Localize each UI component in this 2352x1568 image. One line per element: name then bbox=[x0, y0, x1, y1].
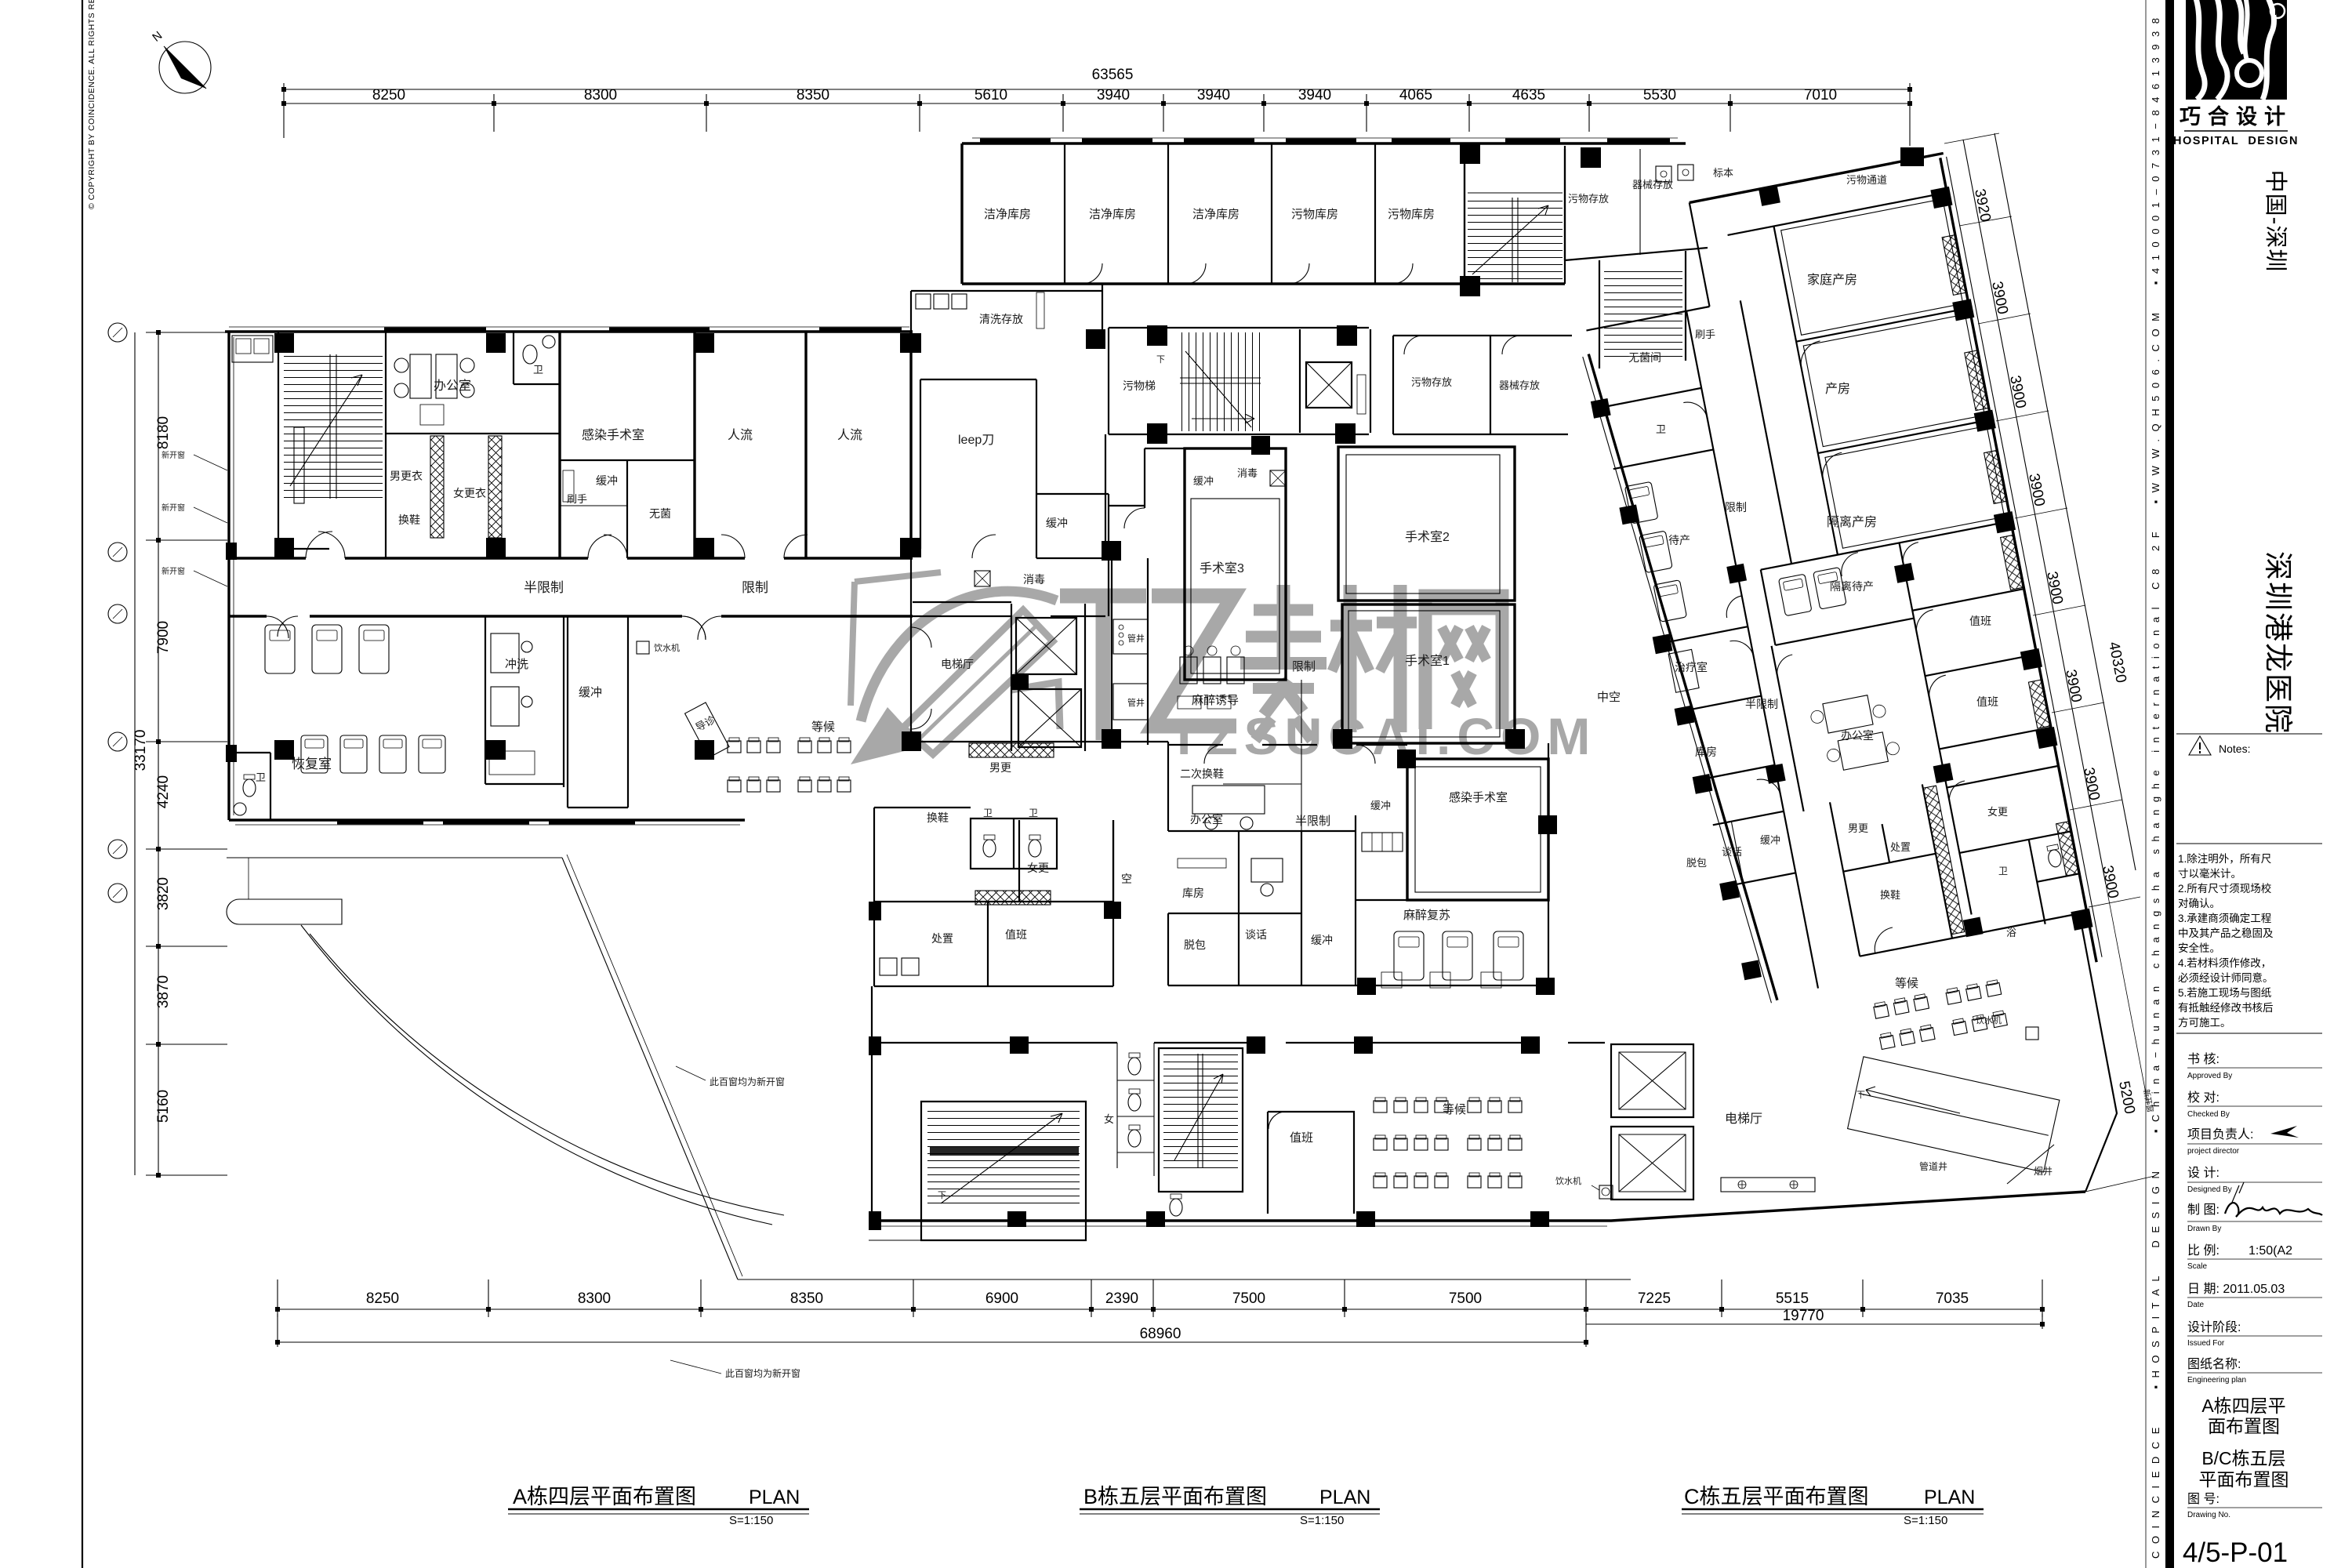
svg-text:设计阶段:: 设计阶段: bbox=[2187, 1320, 2241, 1334]
svg-text:缓冲: 缓冲 bbox=[579, 686, 602, 699]
svg-text:7035: 7035 bbox=[1936, 1290, 1969, 1307]
svg-text:8300: 8300 bbox=[578, 1290, 611, 1307]
svg-text:空: 空 bbox=[1121, 873, 1132, 885]
svg-text:Scale: Scale bbox=[2187, 1262, 2207, 1271]
svg-text:等候: 等候 bbox=[811, 720, 835, 734]
svg-text:5530: 5530 bbox=[1643, 87, 1676, 103]
svg-text:B栋五层平面布置图: B栋五层平面布置图 bbox=[1083, 1485, 1267, 1508]
svg-text:新开窗: 新开窗 bbox=[162, 450, 185, 460]
svg-text:消毒: 消毒 bbox=[1237, 467, 1258, 479]
svg-text:男更: 男更 bbox=[1848, 822, 1868, 834]
svg-text:leep刀: leep刀 bbox=[958, 434, 994, 447]
svg-text:S=1:150: S=1:150 bbox=[1904, 1514, 1947, 1527]
svg-text:手术室3: 手术室3 bbox=[1200, 561, 1244, 575]
svg-text:书 核:: 书 核: bbox=[2187, 1052, 2220, 1066]
svg-text:下: 下 bbox=[1156, 355, 1165, 365]
svg-text:Issued For: Issued For bbox=[2187, 1339, 2225, 1348]
svg-text:B/C栋五层: B/C栋五层 bbox=[2201, 1448, 2285, 1468]
svg-text:人流: 人流 bbox=[728, 428, 753, 442]
svg-text:2.所有尺寸须现场校: 2.所有尺寸须现场校 bbox=[2178, 882, 2272, 895]
svg-text:TZSUCAI.COM: TZSUCAI.COM bbox=[1168, 707, 1596, 765]
svg-text:项目负责人:: 项目负责人: bbox=[2187, 1127, 2253, 1142]
svg-text:女: 女 bbox=[1104, 1113, 1114, 1125]
svg-text:无菌: 无菌 bbox=[649, 507, 671, 520]
svg-text:卫: 卫 bbox=[256, 771, 266, 783]
svg-text:图纸名称:: 图纸名称: bbox=[2187, 1357, 2241, 1371]
svg-text:隔离待产: 隔离待产 bbox=[1830, 580, 1874, 593]
svg-text:手术室1: 手术室1 bbox=[1405, 654, 1450, 668]
svg-text:女更衣: 女更衣 bbox=[453, 487, 486, 499]
svg-text:刷手: 刷手 bbox=[567, 493, 587, 505]
svg-text:深圳港龙医院: 深圳港龙医院 bbox=[2262, 551, 2294, 735]
svg-text:3820: 3820 bbox=[155, 877, 172, 910]
svg-text:半限制: 半限制 bbox=[524, 580, 564, 595]
svg-text:感染手术室: 感染手术室 bbox=[582, 428, 644, 442]
svg-text:4/5-P-01: 4/5-P-01 bbox=[2183, 1537, 2288, 1568]
svg-text:R: R bbox=[2274, 6, 2281, 17]
svg-text:等候: 等候 bbox=[1443, 1102, 1466, 1116]
svg-text:Notes:: Notes: bbox=[2219, 742, 2250, 755]
svg-text:7010: 7010 bbox=[1804, 87, 1837, 103]
svg-text:日 期: 2011.05.03: 日 期: 2011.05.03 bbox=[2187, 1282, 2285, 1296]
svg-text:图 号:: 图 号: bbox=[2187, 1492, 2220, 1506]
svg-text:值班: 值班 bbox=[1976, 695, 1998, 708]
svg-text:新开窗: 新开窗 bbox=[162, 566, 185, 576]
svg-text:男更: 男更 bbox=[989, 761, 1011, 774]
svg-text:此百窗均为新开窗: 此百窗均为新开窗 bbox=[725, 1367, 800, 1379]
svg-text:5610: 5610 bbox=[975, 87, 1007, 103]
svg-text:卫: 卫 bbox=[1029, 808, 1038, 818]
svg-text:限制: 限制 bbox=[1292, 660, 1316, 673]
svg-text:中国-深圳: 中国-深圳 bbox=[2263, 170, 2288, 273]
svg-text:洁净库房: 洁净库房 bbox=[1089, 208, 1136, 221]
svg-text:无菌间: 无菌间 bbox=[1628, 351, 1661, 364]
svg-text:浴: 浴 bbox=[2006, 927, 2016, 938]
svg-text:换鞋: 换鞋 bbox=[1880, 889, 1900, 901]
svg-text:中及其产品之稳固及: 中及其产品之稳固及 bbox=[2178, 927, 2274, 939]
svg-text:污物梯: 污物梯 bbox=[1123, 379, 1156, 392]
svg-text:Drawing No.: Drawing No. bbox=[2187, 1511, 2230, 1519]
svg-text:巧合设计: 巧合设计 bbox=[2180, 104, 2292, 129]
svg-text:库房: 库房 bbox=[1182, 887, 1204, 899]
svg-text:洁净库房: 洁净库房 bbox=[1192, 208, 1240, 221]
svg-text:治疗室: 治疗室 bbox=[1675, 661, 1708, 673]
svg-text:限制: 限制 bbox=[742, 580, 768, 595]
svg-text:project director: project director bbox=[2187, 1147, 2240, 1156]
svg-text:饮水机: 饮水机 bbox=[654, 642, 680, 653]
svg-text:饮水机: 饮水机 bbox=[1976, 1014, 2002, 1025]
svg-text:3.承建商须确定工程: 3.承建商须确定工程 bbox=[2178, 913, 2271, 924]
svg-text:33170: 33170 bbox=[132, 730, 149, 771]
svg-text:产房: 产房 bbox=[1825, 382, 1850, 396]
svg-text:HOSPITAL DESIGN: HOSPITAL DESIGN bbox=[2173, 135, 2299, 147]
svg-text:4065: 4065 bbox=[1399, 87, 1432, 103]
svg-text:半限制: 半限制 bbox=[1745, 698, 1778, 710]
svg-text:7225: 7225 bbox=[1638, 1290, 1671, 1307]
svg-text:制 图:: 制 图: bbox=[2187, 1203, 2220, 1217]
svg-text:3940: 3940 bbox=[1097, 87, 1130, 103]
svg-text:半限制: 半限制 bbox=[1295, 815, 1330, 828]
svg-text:4240: 4240 bbox=[155, 775, 172, 808]
svg-text:8250: 8250 bbox=[372, 87, 405, 103]
svg-text:方可施工。: 方可施工。 bbox=[2178, 1017, 2231, 1029]
svg-text:寸以毫米计。: 寸以毫米计。 bbox=[2178, 867, 2241, 880]
svg-text:必须经设计师同意。: 必须经设计师同意。 bbox=[2178, 971, 2274, 984]
svg-text:此百窗均为新开窗: 此百窗均为新开窗 bbox=[710, 1076, 785, 1087]
svg-text:C栋五层平面布置图: C栋五层平面布置图 bbox=[1684, 1485, 1869, 1508]
svg-text:PLAN: PLAN bbox=[1319, 1486, 1370, 1508]
svg-text:1:50(A2: 1:50(A2 bbox=[2249, 1244, 2292, 1258]
svg-text:缓冲: 缓冲 bbox=[596, 474, 618, 487]
svg-text:冲洗: 冲洗 bbox=[505, 658, 528, 671]
svg-text:女更: 女更 bbox=[1987, 806, 2008, 818]
svg-text:谈话: 谈话 bbox=[1245, 928, 1267, 941]
svg-text:下: 下 bbox=[938, 1191, 946, 1200]
svg-text:办公室: 办公室 bbox=[1841, 729, 1874, 742]
svg-text:恢复室: 恢复室 bbox=[292, 757, 332, 771]
svg-text:Checked By: Checked By bbox=[2187, 1110, 2230, 1119]
svg-text:A栋四层平: A栋四层平 bbox=[2201, 1396, 2285, 1416]
svg-text:感染手术室: 感染手术室 bbox=[1449, 791, 1508, 804]
svg-text:清洗存放: 清洗存放 bbox=[979, 313, 1023, 325]
svg-text:污物库房: 污物库房 bbox=[1291, 208, 1338, 221]
svg-text:隔离产房: 隔离产房 bbox=[1827, 515, 1877, 529]
svg-text:卫: 卫 bbox=[1998, 866, 2008, 877]
svg-text:管井: 管井 bbox=[1127, 697, 1145, 708]
svg-text:S=1:150: S=1:150 bbox=[1300, 1514, 1344, 1527]
svg-text:S=1:150: S=1:150 bbox=[729, 1514, 773, 1527]
svg-text:面布置图: 面布置图 bbox=[2208, 1416, 2280, 1436]
svg-text:设 计:: 设 计: bbox=[2187, 1166, 2220, 1180]
svg-text:消毒: 消毒 bbox=[1023, 573, 1045, 586]
svg-text:4.若材料须作修改，: 4.若材料须作修改， bbox=[2178, 957, 2271, 969]
svg-text:处置: 处置 bbox=[931, 932, 953, 945]
svg-text:7500: 7500 bbox=[1449, 1290, 1482, 1307]
svg-text:5.若施工现场与图纸: 5.若施工现场与图纸 bbox=[2178, 987, 2272, 999]
svg-text:电梯厅: 电梯厅 bbox=[1725, 1112, 1762, 1126]
svg-text:A栋四层平面布置图: A栋四层平面布置图 bbox=[513, 1485, 696, 1508]
svg-text:刷手: 刷手 bbox=[1695, 328, 1715, 340]
svg-text:有抵触经修改书核后: 有抵触经修改书核后 bbox=[2178, 1002, 2274, 1014]
svg-text:卫: 卫 bbox=[533, 364, 543, 376]
svg-text:脱包: 脱包 bbox=[1686, 857, 1707, 869]
svg-text:4635: 4635 bbox=[1512, 87, 1545, 103]
svg-text:办公室: 办公室 bbox=[434, 379, 471, 393]
svg-text:卫: 卫 bbox=[983, 808, 993, 818]
svg-text:2390: 2390 bbox=[1105, 1290, 1138, 1307]
svg-text:麻醉诱导: 麻醉诱导 bbox=[1192, 694, 1239, 707]
svg-text:二次换鞋: 二次换鞋 bbox=[1180, 768, 1224, 780]
svg-text:8350: 8350 bbox=[790, 1290, 823, 1307]
svg-text:中空: 中空 bbox=[1597, 691, 1621, 704]
svg-text:电梯厅: 电梯厅 bbox=[941, 658, 974, 670]
svg-text:6900: 6900 bbox=[985, 1290, 1018, 1307]
svg-text:8180: 8180 bbox=[155, 416, 172, 449]
svg-text:值班: 值班 bbox=[1290, 1131, 1313, 1145]
svg-text:污物存放: 污物存放 bbox=[1411, 376, 1452, 388]
svg-text:下: 下 bbox=[1857, 1091, 1865, 1100]
svg-text:8350: 8350 bbox=[797, 87, 829, 103]
svg-text:换鞋: 换鞋 bbox=[927, 811, 949, 824]
svg-text:安全性。: 安全性。 bbox=[2178, 942, 2220, 954]
svg-text:缓冲: 缓冲 bbox=[1760, 834, 1780, 846]
svg-text:Engineering plan: Engineering plan bbox=[2187, 1376, 2246, 1385]
svg-text:3940: 3940 bbox=[1197, 87, 1230, 103]
svg-text:PLAN: PLAN bbox=[1924, 1486, 1975, 1508]
svg-text:3870: 3870 bbox=[155, 975, 172, 1008]
svg-text:© COPYRIGHT BY COINCIDENCE. A: © COPYRIGHT BY COINCIDENCE. ALL RIGHTS R… bbox=[87, 0, 96, 209]
svg-text:1.除注明外，所有尺: 1.除注明外，所有尺 bbox=[2178, 853, 2271, 865]
svg-text:Approved By: Approved By bbox=[2187, 1072, 2232, 1080]
svg-text:比 例:: 比 例: bbox=[2187, 1243, 2220, 1258]
svg-text:换鞋: 换鞋 bbox=[398, 514, 420, 526]
svg-text:器械存放: 器械存放 bbox=[1632, 179, 1673, 191]
svg-text:家庭产房: 家庭产房 bbox=[1807, 273, 1857, 287]
svg-text:待产: 待产 bbox=[1668, 534, 1690, 546]
svg-text:卫: 卫 bbox=[1656, 423, 1666, 435]
svg-text:Designed By: Designed By bbox=[2187, 1185, 2232, 1194]
svg-text:烟井: 烟井 bbox=[2034, 1166, 2053, 1177]
svg-text:新开窗: 新开窗 bbox=[162, 503, 185, 513]
svg-text:平面布置图: 平面布置图 bbox=[2199, 1469, 2289, 1490]
svg-text:缓冲: 缓冲 bbox=[1311, 934, 1333, 946]
svg-text:处置: 处置 bbox=[1890, 841, 1911, 853]
svg-text:人流: 人流 bbox=[837, 428, 862, 442]
svg-text:麻醉复苏: 麻醉复苏 bbox=[1403, 908, 1450, 922]
svg-text:对确认。: 对确认。 bbox=[2178, 898, 2220, 909]
svg-text:脱包: 脱包 bbox=[1184, 938, 1206, 951]
svg-text:7900: 7900 bbox=[155, 621, 172, 654]
svg-text:污物存放: 污物存放 bbox=[1568, 193, 1609, 205]
svg-text:污物库房: 污物库房 bbox=[1388, 208, 1435, 221]
svg-text:PLAN: PLAN bbox=[749, 1486, 800, 1508]
svg-text:7500: 7500 bbox=[1232, 1290, 1265, 1307]
svg-text:管道井: 管道井 bbox=[1919, 1160, 1947, 1172]
svg-text:Date: Date bbox=[2187, 1301, 2205, 1309]
svg-text:缓冲: 缓冲 bbox=[1370, 800, 1391, 811]
svg-text:管井: 管井 bbox=[1127, 633, 1145, 644]
svg-text:值班: 值班 bbox=[1005, 928, 1027, 941]
svg-text:男更衣: 男更衣 bbox=[390, 470, 423, 482]
svg-text:等候: 等候 bbox=[1895, 976, 1918, 990]
svg-text:缓冲: 缓冲 bbox=[1046, 517, 1068, 529]
svg-text:手术室2: 手术室2 bbox=[1405, 530, 1450, 544]
svg-text:8300: 8300 bbox=[584, 87, 617, 103]
svg-text:缓冲: 缓冲 bbox=[1193, 475, 1214, 487]
svg-text:3940: 3940 bbox=[1298, 87, 1331, 103]
svg-text:Drawn By: Drawn By bbox=[2187, 1225, 2221, 1233]
svg-text:值班: 值班 bbox=[1969, 615, 1991, 627]
svg-text:限制: 限制 bbox=[1725, 501, 1747, 514]
svg-text:68960: 68960 bbox=[1140, 1326, 1181, 1342]
svg-text:8250: 8250 bbox=[366, 1290, 399, 1307]
svg-text:5160: 5160 bbox=[155, 1090, 172, 1123]
svg-text:洁净库房: 洁净库房 bbox=[984, 208, 1031, 221]
svg-text:谈话: 谈话 bbox=[1722, 846, 1742, 858]
svg-text:标本: 标本 bbox=[1713, 167, 1733, 179]
svg-text:器械存放: 器械存放 bbox=[1499, 379, 1540, 391]
svg-text:办公室: 办公室 bbox=[1190, 813, 1223, 826]
svg-text:63565: 63565 bbox=[1092, 67, 1134, 83]
svg-text:污物通道: 污物通道 bbox=[1846, 174, 1887, 186]
svg-text:女更: 女更 bbox=[1027, 862, 1049, 874]
svg-text:校 对:: 校 对: bbox=[2187, 1091, 2220, 1105]
svg-text:19770: 19770 bbox=[1783, 1308, 1824, 1324]
svg-text:5515: 5515 bbox=[1776, 1290, 1809, 1307]
svg-text:饮水机: 饮水机 bbox=[1555, 1175, 1581, 1186]
svg-text:库房: 库房 bbox=[1695, 746, 1717, 758]
